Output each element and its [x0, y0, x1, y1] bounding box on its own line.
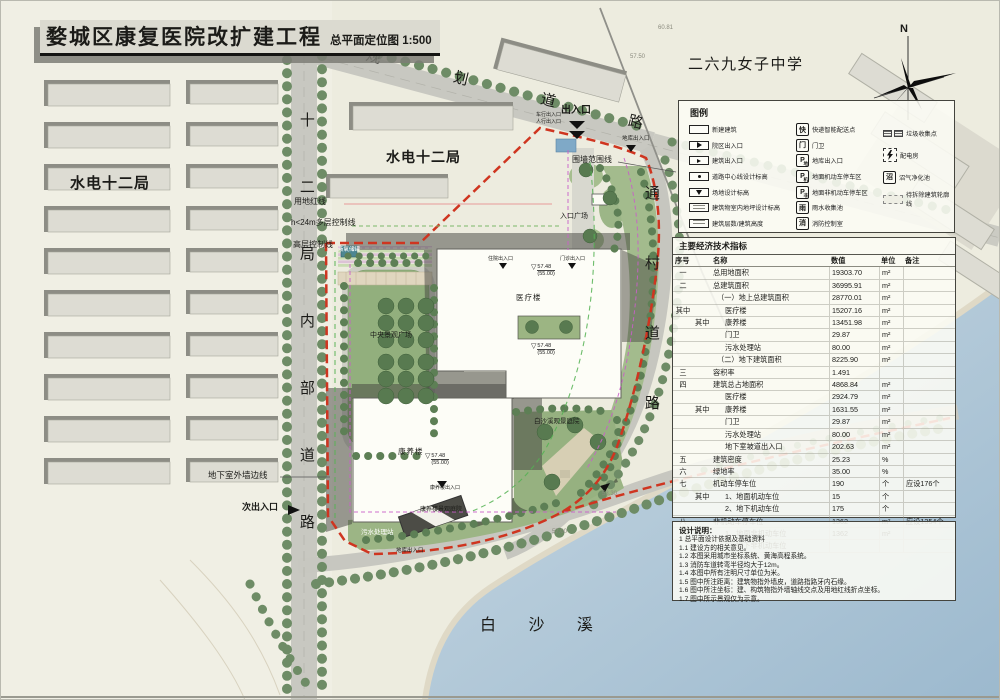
table-cell	[693, 285, 711, 287]
label-pedestrian-entry: 人行出入口	[536, 120, 561, 125]
legend-item-label: 快递智能配送点	[812, 125, 855, 134]
table-cell: m²	[879, 404, 903, 415]
table-cell	[903, 292, 953, 303]
table-cell	[903, 391, 953, 402]
elevation-marker: ▽ 57.48(55.00)	[531, 343, 555, 356]
table-cell: 1631.55	[829, 404, 879, 415]
table-cell	[903, 317, 953, 328]
table-row: 其中1、地面机动车位15个	[673, 491, 955, 503]
table-cell: 康养楼	[711, 317, 829, 328]
table-cell: 其中	[693, 491, 711, 502]
label-central-plaza: 中央景观广场	[370, 332, 412, 339]
table-row: 五建筑密度25.23%	[673, 454, 955, 466]
table-cell	[903, 454, 953, 465]
table-cell	[673, 396, 693, 398]
label-oxygen-tank: 液氧储罐	[338, 248, 360, 254]
label-care-building: 康养楼	[398, 448, 424, 456]
table-header-cell: 单位	[879, 255, 903, 266]
legend-glyph-icon: P机	[796, 170, 809, 183]
label-multistory-control-line: h<24m多层控制线	[291, 219, 356, 227]
legend-glyph-icon: 雨	[796, 201, 809, 214]
legend-item: 垃圾收集点	[883, 122, 955, 144]
table-cell	[903, 354, 953, 365]
table-cell: 康养楼	[711, 404, 829, 415]
table-cell	[693, 483, 711, 485]
label-entry-plaza: 入口广场	[560, 213, 588, 220]
legend-item-label: 建筑层数/建筑高度	[712, 219, 763, 228]
area-label-river: 白 沙 溪	[480, 618, 607, 635]
notes-line: 1.1 建设方的相关意见。	[673, 545, 955, 554]
table-cell: （二）地下建筑面积	[711, 354, 829, 365]
table-cell: 1、地面机动车位	[711, 491, 829, 502]
table-cell: 七	[673, 478, 693, 489]
area-label-bureau-left: 水电十二局	[70, 176, 150, 192]
legend-item: 待拆除建筑轮廓线	[883, 188, 955, 210]
label-inpatient-entry: 住院出入口	[488, 257, 513, 262]
table-cell	[903, 305, 953, 316]
table-cell: 1.491	[829, 367, 879, 378]
notes-title: 设计说明：	[673, 522, 955, 536]
table-row: 污水处理站80.00m²	[673, 342, 955, 354]
legend-glyph-icon: 门	[796, 139, 809, 152]
notes-lines: 1 总平面设计依据及基础资料1.1 建设方的相关意见。1.2 本图采用城市坐标系…	[673, 536, 955, 604]
table-cell: 机动车停车位	[711, 478, 829, 489]
table-cell: 29.87	[829, 416, 879, 427]
table-cell	[903, 416, 953, 427]
table-header-cell: 数值	[829, 255, 879, 266]
table-cell: m²	[879, 329, 903, 340]
table-cell: 个	[879, 478, 903, 489]
table-cell: 25.23	[829, 454, 879, 465]
table-row: （二）地下建筑面积8225.90m²	[673, 354, 955, 366]
table-row: 门卫29.87m²	[673, 416, 955, 428]
legend-item-label: 配电房	[900, 151, 919, 160]
table-cell: 总建筑面积	[711, 280, 829, 291]
table-title: 主要经济技术指标	[673, 238, 955, 255]
entrance-canopy	[556, 139, 576, 152]
elevation-reference: (55.00)	[537, 270, 554, 277]
table-cell	[673, 508, 693, 510]
table-cell: m²	[879, 379, 903, 390]
label-care-entry: 康养楼出入口	[430, 486, 460, 491]
table-cell	[673, 334, 693, 336]
floor-elevation-icon	[689, 203, 709, 212]
road-elevation-icon	[689, 172, 709, 181]
table-cell: 容积率	[711, 367, 829, 378]
legend-item-label: 地面机动车停车区	[812, 172, 862, 181]
legend-item-label: 待拆除建筑轮廓线	[906, 190, 955, 208]
legend-item-label: 院区出入口	[712, 141, 743, 150]
campus-entry-icon	[689, 141, 709, 150]
table-cell: 地下室坡道出入口	[711, 441, 829, 452]
label-fence-line: 围墙范围线	[572, 156, 612, 164]
table-cell: 二	[673, 280, 693, 291]
table-cell: 15	[829, 491, 879, 502]
table-cell	[673, 359, 693, 361]
table-cell	[903, 267, 953, 278]
table-cell: 36995.91	[829, 280, 879, 291]
legend-item: 沼沼气净化池	[883, 166, 955, 188]
legend-glyph-icon: 快	[796, 123, 809, 136]
legend-item-label: 地库出入口	[812, 156, 843, 165]
trash-collection-icon	[883, 130, 903, 137]
table-cell: 4868.84	[829, 379, 879, 390]
table-cell: 2、地下机动车位	[711, 503, 829, 514]
table-cell	[903, 367, 953, 378]
legend-glyph-icon: 沼	[883, 171, 896, 184]
legend-item: 院区出入口	[689, 138, 793, 154]
table-cell: 28770.01	[829, 292, 879, 303]
label-basement-edge: 地下室外墙边线	[208, 471, 268, 480]
elevation-reference: (55.00)	[431, 459, 448, 466]
table-row: 一总用地面积19303.70m²	[673, 267, 955, 279]
table-cell: m²	[879, 267, 903, 278]
table-cell	[673, 495, 693, 497]
notes-line: 1.6 图中所注坐标：建、构筑物指外墙轴线交点及用地红线折点坐标。	[673, 587, 955, 596]
table-cell: 个	[879, 503, 903, 514]
legend-title: 图例	[690, 106, 708, 119]
notes-line: 1.7 图中所示景观仅为示意。	[673, 596, 955, 605]
table-cell: 175	[829, 503, 879, 514]
table-cell	[903, 491, 953, 502]
table-cell: 80.00	[829, 429, 879, 440]
legend-glyph-icon: 消	[796, 217, 809, 230]
table-cell: 污水处理站	[711, 342, 829, 353]
table-cell	[673, 347, 693, 349]
table-cell	[693, 371, 711, 373]
table-row: 其中康养楼1631.55m²	[673, 404, 955, 416]
table-cell	[903, 441, 953, 452]
table-row: 六绿地率35.00%	[673, 466, 955, 478]
table-cell	[693, 446, 711, 448]
table-cell	[903, 503, 953, 514]
legend-item-label: 消防控制室	[812, 219, 843, 228]
table-cell	[693, 421, 711, 423]
table-cell: 门卫	[711, 416, 829, 427]
table-cell: %	[879, 454, 903, 465]
legend-item: P非地面非机动车停车区	[796, 184, 888, 200]
table-header-cell	[693, 260, 711, 262]
label-garage-entry: 地库出入口	[622, 137, 650, 143]
table-cell: 门卫	[711, 329, 829, 340]
table-cell: 总用地面积	[711, 267, 829, 278]
table-cell: 六	[673, 466, 693, 477]
table-cell: %	[879, 466, 903, 477]
notes-line: 1.5 图中所注距离：建筑物指外墙皮，道路指路牙内石缘。	[673, 579, 955, 588]
new-building-icon	[689, 125, 709, 134]
table-cell	[693, 471, 711, 473]
table-row: 其中医疗楼15207.16m²	[673, 305, 955, 317]
table-cell: 15207.16	[829, 305, 879, 316]
table-cell: 35.00	[829, 466, 879, 477]
legend-column-1: 新建建筑院区出入口建筑出入口道路中心线设计标高场地设计标高建筑物室内地坪设计标高…	[689, 122, 793, 231]
legend-item: 配电房	[883, 144, 955, 166]
table-cell	[693, 334, 711, 336]
road-label-village: 通村道路	[643, 185, 659, 465]
label-sewage-station: 污水处理站	[361, 530, 394, 537]
spot-elevation: 57.00	[552, 529, 567, 535]
label-highrise-control-line: 高层控制线	[293, 241, 333, 249]
table-cell: 五	[673, 454, 693, 465]
table-row: 四建筑总占地面积4868.84m²	[673, 379, 955, 391]
table-row: 污水处理站80.00m²	[673, 429, 955, 441]
table-cell	[903, 379, 953, 390]
site-elevation-icon	[689, 188, 709, 197]
label-medical-building: 医疗楼	[516, 294, 542, 302]
table-row: 三容积率1.491	[673, 367, 955, 379]
elevation-triangle-icon: ▽	[531, 264, 536, 277]
legend-item: 场地设计标高	[689, 184, 793, 200]
table-cell: 2924.79	[829, 391, 879, 402]
table-row: 七机动车停车位190个应设176个	[673, 478, 955, 490]
table-cell	[673, 409, 693, 411]
table-cell: 医疗楼	[711, 305, 829, 316]
label-main-entry: 出入口	[561, 106, 591, 117]
legend-item: 新建建筑	[689, 122, 793, 138]
table-cell	[903, 280, 953, 291]
table-cell	[903, 466, 953, 477]
demolish-outline-icon	[883, 195, 903, 204]
notes-line: 1.2 本图采用城市坐标系统、黄海高程系统。	[673, 553, 955, 562]
table-cell	[693, 508, 711, 510]
table-cell: m²	[879, 292, 903, 303]
label-outpatient-entry: 门诊出入口	[560, 257, 585, 262]
legend-panel: 图例 新建建筑院区出入口建筑出入口道路中心线设计标高场地设计标高建筑物室内地坪设…	[678, 100, 955, 233]
table-cell	[693, 309, 711, 311]
table-cell: 29.87	[829, 329, 879, 340]
label-garage-entry-2: 地库出入口	[396, 549, 424, 555]
table-cell: 医疗楼	[711, 391, 829, 402]
table-cell: m²	[879, 391, 903, 402]
elevation-marker: ▽ 57.48(55.00)	[425, 453, 449, 466]
table-cell: 建筑密度	[711, 454, 829, 465]
legend-item: P地地库出入口	[796, 153, 888, 169]
table-header-cell: 序号	[673, 255, 693, 266]
table-cell: 三	[673, 367, 693, 378]
legend-item: 建筑层数/建筑高度	[689, 216, 793, 232]
drawing-title: 婺城区康复医院改扩建工程	[46, 21, 322, 51]
legend-item: 建筑物室内地坪设计标高	[689, 200, 793, 216]
road-label-internal: 十二局内部道路	[298, 112, 314, 581]
table-cell: 190	[829, 478, 879, 489]
legend-item-label: 场地设计标高	[712, 188, 749, 197]
legend-item: 门门卫	[796, 138, 888, 154]
elevation-reference: (55.00)	[537, 349, 554, 356]
indicators-table-panel: 主要经济技术指标 序号名称数值单位备注 一总用地面积19303.70m²二总建筑…	[672, 237, 956, 518]
table-row: 医疗楼2924.79m²	[673, 391, 955, 403]
label-red-line: 用地红线	[294, 198, 326, 206]
notes-line: 1.3 消防车道转弯半径均大于12m。	[673, 562, 955, 571]
area-label-bureau-mid: 水电十二局	[386, 150, 461, 165]
legend-item-label: 垃圾收集点	[906, 129, 937, 138]
legend-item: 建筑出入口	[689, 153, 793, 169]
elevation-triangle-icon: ▽	[425, 453, 430, 466]
table-cell: 绿地率	[711, 466, 829, 477]
table-cell	[903, 404, 953, 415]
table-cell: 8225.90	[829, 354, 879, 365]
table-cell: 19303.70	[829, 267, 879, 278]
spot-elevation: 53.30	[602, 491, 617, 497]
table-cell: 其中	[693, 317, 711, 328]
table-cell: m²	[879, 441, 903, 452]
table-row: 门卫29.87m²	[673, 329, 955, 341]
table-cell: 个	[879, 491, 903, 502]
table-cell: 一	[673, 267, 693, 278]
drawing-subtitle: 总平面定位图 1:500	[330, 32, 432, 48]
table-cell: 13451.98	[829, 317, 879, 328]
legend-item: 雨雨水收集池	[796, 200, 888, 216]
table-cell: （一）地上总建筑面积	[711, 292, 829, 303]
legend-item: P机地面机动车停车区	[796, 169, 888, 185]
table-row: 2、地下机动车位175个	[673, 503, 955, 515]
table-cell: m²	[879, 317, 903, 328]
legend-glyph-icon: P地	[796, 154, 809, 167]
legend-item: 消消防控制室	[796, 216, 888, 232]
table-header-row: 序号名称数值单位备注	[673, 255, 955, 267]
table-header-cell: 名称	[711, 255, 829, 266]
power-room-icon	[883, 148, 897, 162]
design-notes-panel: 设计说明： 1 总平面设计依据及基础资料1.1 建设方的相关意见。1.2 本图采…	[672, 521, 956, 601]
building-entry-icon	[689, 156, 709, 165]
table-cell	[693, 458, 711, 460]
legend-glyph-icon: P非	[796, 186, 809, 199]
table-cell	[693, 272, 711, 274]
table-cell: m²	[879, 305, 903, 316]
table-cell	[903, 429, 953, 440]
table-cell: 建筑总占地面积	[711, 379, 829, 390]
table-cell	[693, 359, 711, 361]
legend-item: 快快递智能配送点	[796, 122, 888, 138]
table-cell: m²	[879, 429, 903, 440]
legend-item-label: 沼气净化池	[899, 173, 930, 182]
table-cell	[693, 297, 711, 299]
table-cell	[673, 421, 693, 423]
table-cell	[673, 322, 693, 324]
table-row: 地下室坡道出入口202.63m²	[673, 441, 955, 453]
legend-item-label: 建筑出入口	[712, 156, 743, 165]
table-cell	[693, 396, 711, 398]
table-header-cell: 备注	[903, 255, 953, 266]
table-cell	[693, 347, 711, 349]
table-cell: 80.00	[829, 342, 879, 353]
table-row: （一）地上总建筑面积28770.01m²	[673, 292, 955, 304]
legend-item-label: 门卫	[812, 141, 824, 150]
label-stream-garden: 白沙溪观景庭院	[534, 419, 580, 426]
legend-item-label: 地面非机动车停车区	[812, 188, 868, 197]
table-cell	[673, 433, 693, 435]
area-label-school: 二六九女子中学	[688, 57, 804, 73]
table-cell: 四	[673, 379, 693, 390]
title-block: 婺城区康复医院改扩建工程 总平面定位图 1:500	[40, 20, 440, 56]
legend-item-label: 新建建筑	[712, 125, 737, 134]
elevation-triangle-icon: ▽	[531, 343, 536, 356]
table-cell	[879, 367, 903, 378]
table-cell	[693, 384, 711, 386]
table-cell: m²	[879, 416, 903, 427]
table-body: 一总用地面积19303.70m²二总建筑面积36995.91m²（一）地上总建筑…	[673, 267, 955, 552]
label-vehicle-entry: 车行出入口	[536, 113, 561, 118]
table-cell: 应设176个	[903, 478, 953, 489]
table-cell: 其中	[673, 305, 693, 316]
notes-line: 1 总平面设计依据及基础资料	[673, 536, 955, 545]
table-cell	[673, 446, 693, 448]
table-row: 其中康养楼13451.98m²	[673, 317, 955, 329]
floor-count-icon	[689, 219, 709, 228]
compass-north-label: N	[900, 24, 908, 36]
legend-item: 道路中心线设计标高	[689, 169, 793, 185]
table-cell: m²	[879, 280, 903, 291]
legend-item-label: 建筑物室内地坪设计标高	[712, 203, 780, 212]
legend-column-3: 垃圾收集点配电房沼沼气净化池待拆除建筑轮廓线	[883, 122, 955, 210]
table-cell: 其中	[693, 404, 711, 415]
table-cell	[673, 297, 693, 299]
spot-elevation: 60.81	[658, 25, 673, 31]
table-row: 二总建筑面积36995.91m²	[673, 280, 955, 292]
table-cell: 202.63	[829, 441, 879, 452]
table-cell	[903, 329, 953, 340]
legend-column-2: 快快递智能配送点门门卫P地地库出入口P机地面机动车停车区P非地面非机动车停车区雨…	[796, 122, 888, 231]
table-cell: m²	[879, 354, 903, 365]
table-cell: m²	[879, 342, 903, 353]
table-cell	[693, 433, 711, 435]
label-secondary-entry: 次出入口	[242, 503, 278, 513]
legend-item-label: 道路中心线设计标高	[712, 172, 768, 181]
label-care-garden: 康养楼景观庭院	[420, 507, 462, 513]
elevation-marker: ▽ 57.48(55.00)	[531, 264, 555, 277]
table-cell	[903, 342, 953, 353]
spot-elevation: 57.50	[630, 54, 645, 60]
site-plan-drawing: 二六九女子中学 水电十二局 水电十二局 白 沙 溪 规划道路 十二局内部道路 通…	[0, 0, 1000, 700]
table-cell: 污水处理站	[711, 429, 829, 440]
notes-line: 1.4 本图中所有注明尺寸单位为米。	[673, 570, 955, 579]
legend-item-label: 雨水收集池	[812, 203, 843, 212]
